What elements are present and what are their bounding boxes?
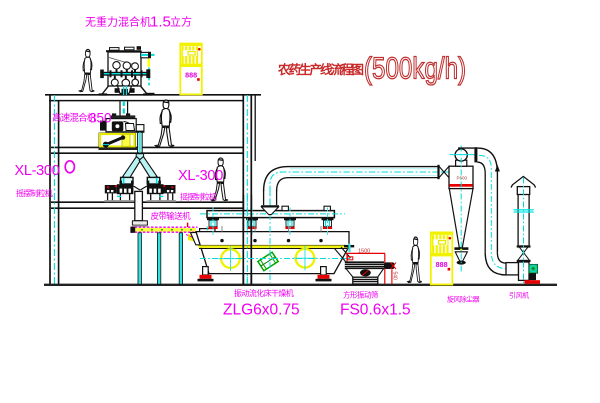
svg-text:农药生产线流程图: 农药生产线流程图 — [277, 62, 364, 77]
svg-text:ZLG6x0.75: ZLG6x0.75 — [223, 302, 300, 319]
svg-text:摇摆制粒机: 摇摆制粒机 — [16, 188, 53, 198]
svg-text:振动流化床干燥机: 振动流化床干燥机 — [234, 288, 294, 298]
svg-text:摇摆制粒机: 摇摆制粒机 — [180, 191, 217, 201]
svg-text:旋风除尘器: 旋风除尘器 — [447, 295, 480, 304]
svg-text:1.5: 1.5 — [150, 14, 171, 31]
svg-text:FS0.6x1.5: FS0.6x1.5 — [340, 302, 411, 319]
svg-text:方形振动筛: 方形振动筛 — [343, 290, 379, 300]
svg-text:(500kg/h): (500kg/h) — [364, 51, 466, 86]
svg-text:350: 350 — [89, 111, 112, 126]
svg-text:1500: 1500 — [358, 249, 370, 255]
svg-text:540: 540 — [392, 272, 398, 281]
svg-text:引风机: 引风机 — [509, 291, 529, 300]
svg-text:P600: P600 — [457, 176, 468, 181]
svg-text:XL-300: XL-300 — [178, 168, 223, 184]
svg-text:立方: 立方 — [170, 15, 192, 29]
svg-text:皮带输送机: 皮带输送机 — [151, 211, 192, 221]
svg-text:无重力混合机: 无重力混合机 — [85, 15, 151, 29]
svg-text:XL-300: XL-300 — [15, 163, 60, 179]
